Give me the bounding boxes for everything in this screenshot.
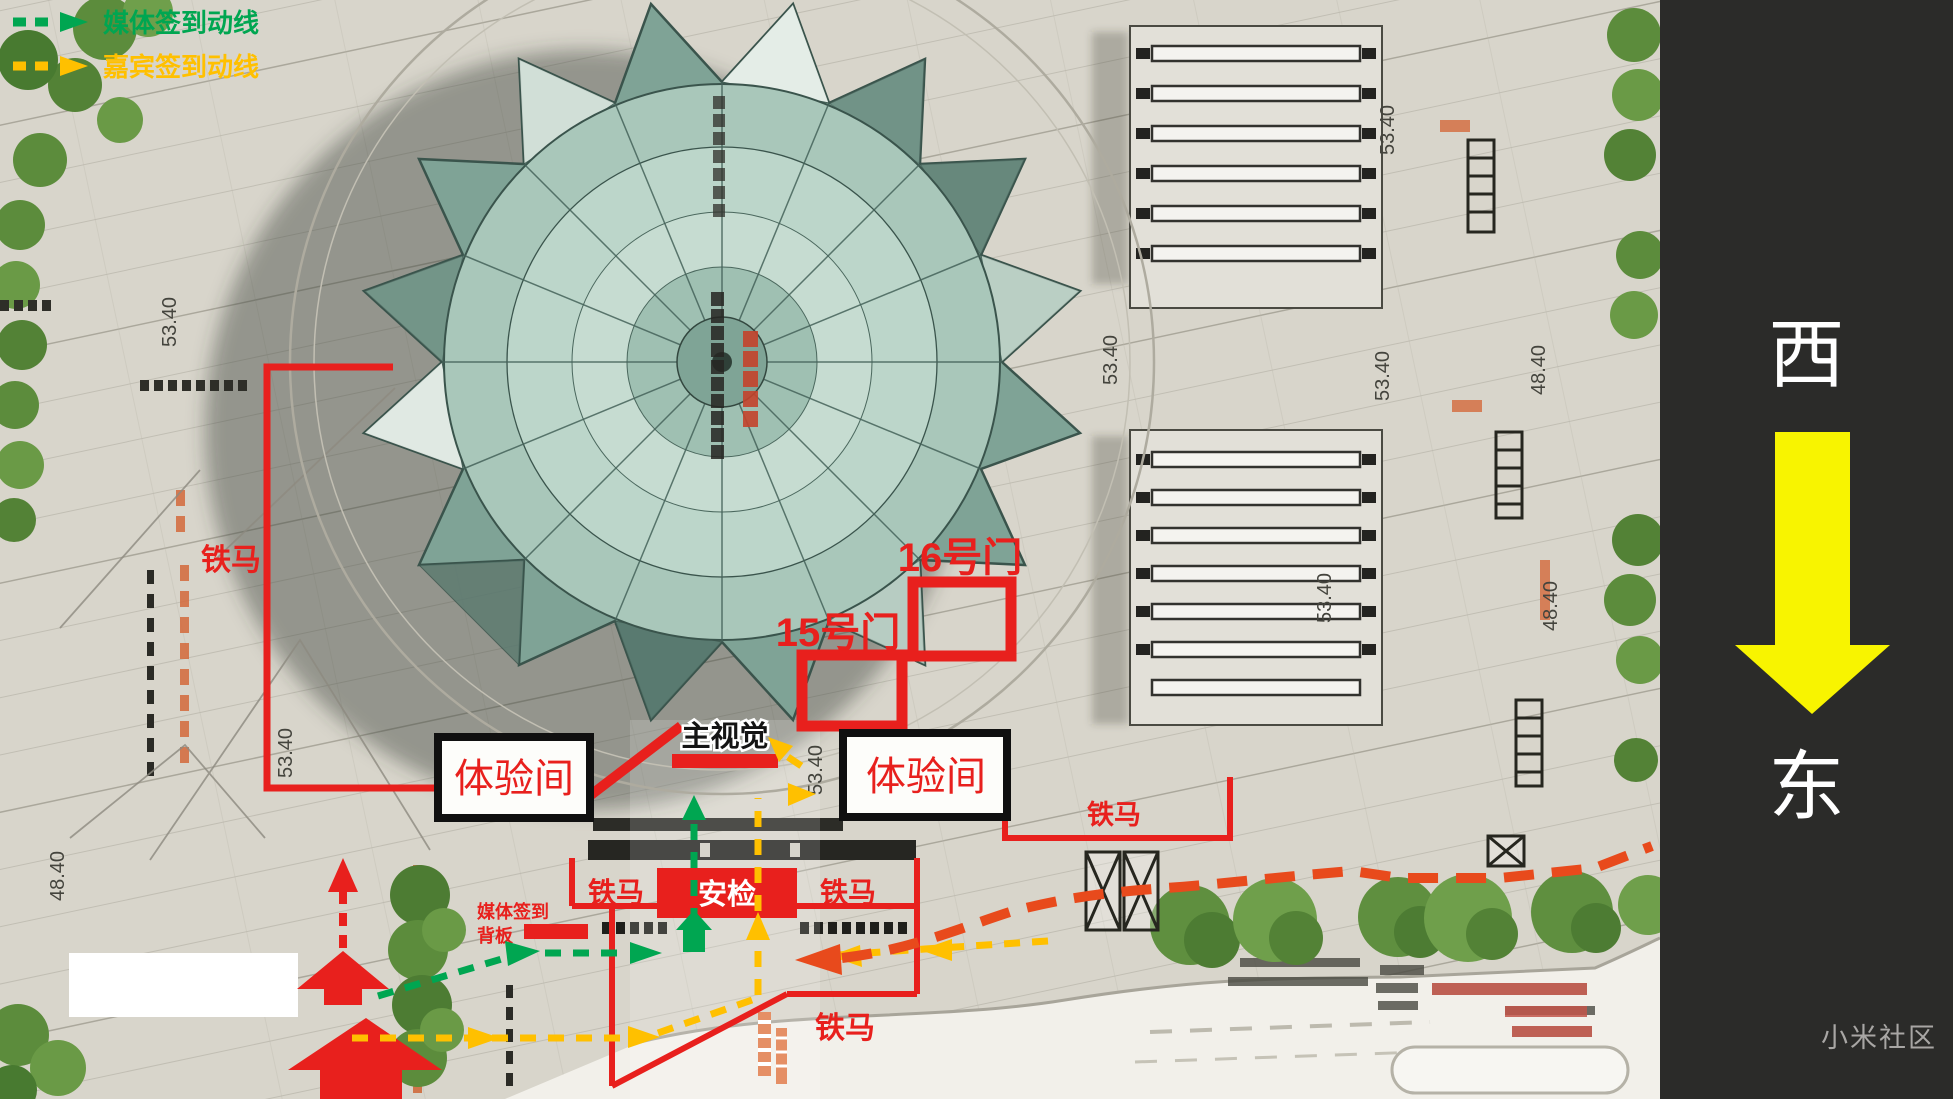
elevation-label: 48.40: [1540, 581, 1562, 631]
barrier-label-right: 铁马: [1087, 800, 1141, 830]
elevation-label: 53.40: [1372, 351, 1394, 401]
building-north: [1092, 26, 1382, 308]
elevation-label: 48.40: [47, 851, 69, 901]
media-backdrop-bar: [524, 924, 588, 939]
white-note-box: [69, 953, 298, 1017]
main-visual-stage-bar: [672, 754, 778, 768]
media-backdrop-label-line1: 媒体签到: [477, 901, 549, 922]
barrier-label-security-right: 铁马: [820, 877, 876, 908]
barrier-label-bottom: 铁马: [815, 1012, 875, 1045]
legend-media-label: 媒体签到动线: [103, 8, 259, 38]
compass-east-label: 东: [1660, 750, 1953, 826]
experience-room-right: 体验间: [843, 733, 1007, 817]
side-panel: 西 东 小米社区: [1660, 0, 1953, 1099]
east-direction-arrow: [1660, 0, 1953, 1099]
entry-arrow-medium: [297, 951, 389, 1005]
elevation-label: 48.40: [1528, 345, 1550, 395]
legend-guest-label: 嘉宾签到动线: [103, 52, 259, 82]
main-visual-label: 主视觉: [681, 720, 768, 753]
legend-item-media: 媒体签到动线: [13, 8, 259, 38]
experience-room-left: 体验间: [438, 737, 590, 818]
barrier-label-security-left: 铁马: [588, 877, 644, 908]
elevation-label: 53.40: [805, 745, 827, 795]
experience-room-left-label: 体验间: [454, 757, 574, 801]
security-check-label: 安检: [698, 877, 756, 911]
experience-room-right-label: 体验间: [866, 755, 986, 799]
elevation-label: 53.40: [1377, 105, 1399, 155]
compass-west-label: 西: [1660, 318, 1953, 394]
elevation-label: 53.40: [275, 728, 297, 778]
barrier-label-left: 铁马: [201, 544, 261, 577]
media-backdrop: 媒体签到 背板: [477, 901, 588, 946]
elevation-label: 53.40: [159, 297, 181, 347]
site-plan-svg: 53.40 53.40 48.40 53.40 53.40 53.40 48.4…: [0, 0, 1660, 1099]
gate16-label: 16号门: [898, 536, 1023, 580]
slide: 53.40 53.40 48.40 53.40 53.40 53.40 48.4…: [0, 0, 1953, 1099]
site-plan-map: 53.40 53.40 48.40 53.40 53.40 53.40 48.4…: [0, 0, 1660, 1099]
elevation-label: 53.40: [1100, 335, 1122, 385]
gate15-label: 15号门: [776, 611, 901, 655]
watermark: 小米社区: [1821, 1016, 1937, 1055]
building-south: [1092, 430, 1382, 725]
elevation-label: 53.40: [1314, 573, 1336, 623]
